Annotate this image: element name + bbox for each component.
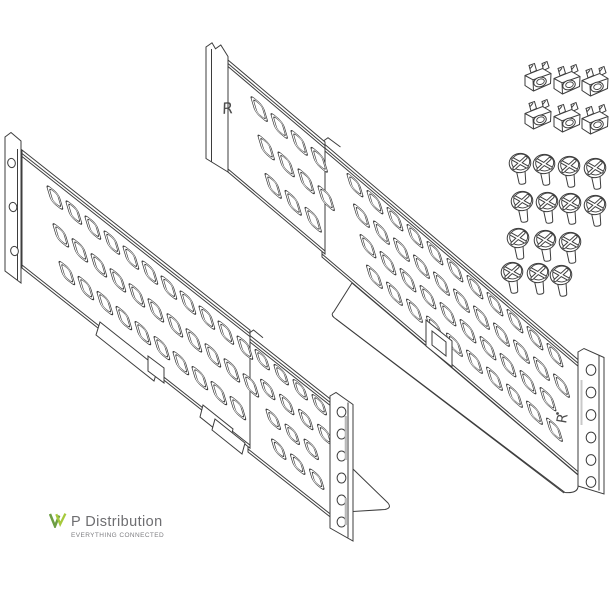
screws-group	[500, 152, 609, 298]
screw-icon	[583, 194, 609, 228]
cage-nuts-group	[525, 62, 608, 135]
cage-nut-icon	[525, 62, 551, 92]
screw-icon	[558, 231, 584, 265]
screw-icon	[508, 152, 534, 186]
screw-icon	[500, 261, 526, 295]
screw-icon	[583, 157, 609, 191]
cage-nut-icon	[554, 65, 580, 95]
screw-icon	[558, 192, 584, 226]
logo-tagline: EVERYTHING CONNECTED	[71, 532, 164, 539]
screw-icon	[549, 264, 575, 298]
screw-icon	[506, 227, 532, 261]
screw-icon	[557, 155, 583, 189]
logo-row: P Distribution	[49, 513, 164, 529]
product-illustration-canvas: R R P Distribution EVERYTHING CONNECTED	[0, 0, 610, 610]
screw-icon	[526, 262, 552, 296]
rail-marking-r-left: R	[222, 99, 234, 118]
cage-nut-icon	[554, 103, 580, 133]
cage-nut-icon	[582, 105, 608, 135]
screw-icon	[510, 190, 536, 224]
screw-icon	[532, 153, 558, 187]
cage-nut-icon	[582, 67, 608, 97]
screw-icon	[535, 191, 561, 225]
vp-distribution-logo: P Distribution EVERYTHING CONNECTED	[49, 513, 164, 539]
logo-name: P Distribution	[71, 515, 163, 530]
logo-double-v-mark-icon	[49, 513, 67, 528]
screw-icon	[533, 229, 559, 263]
cage-nut-icon	[525, 100, 551, 130]
